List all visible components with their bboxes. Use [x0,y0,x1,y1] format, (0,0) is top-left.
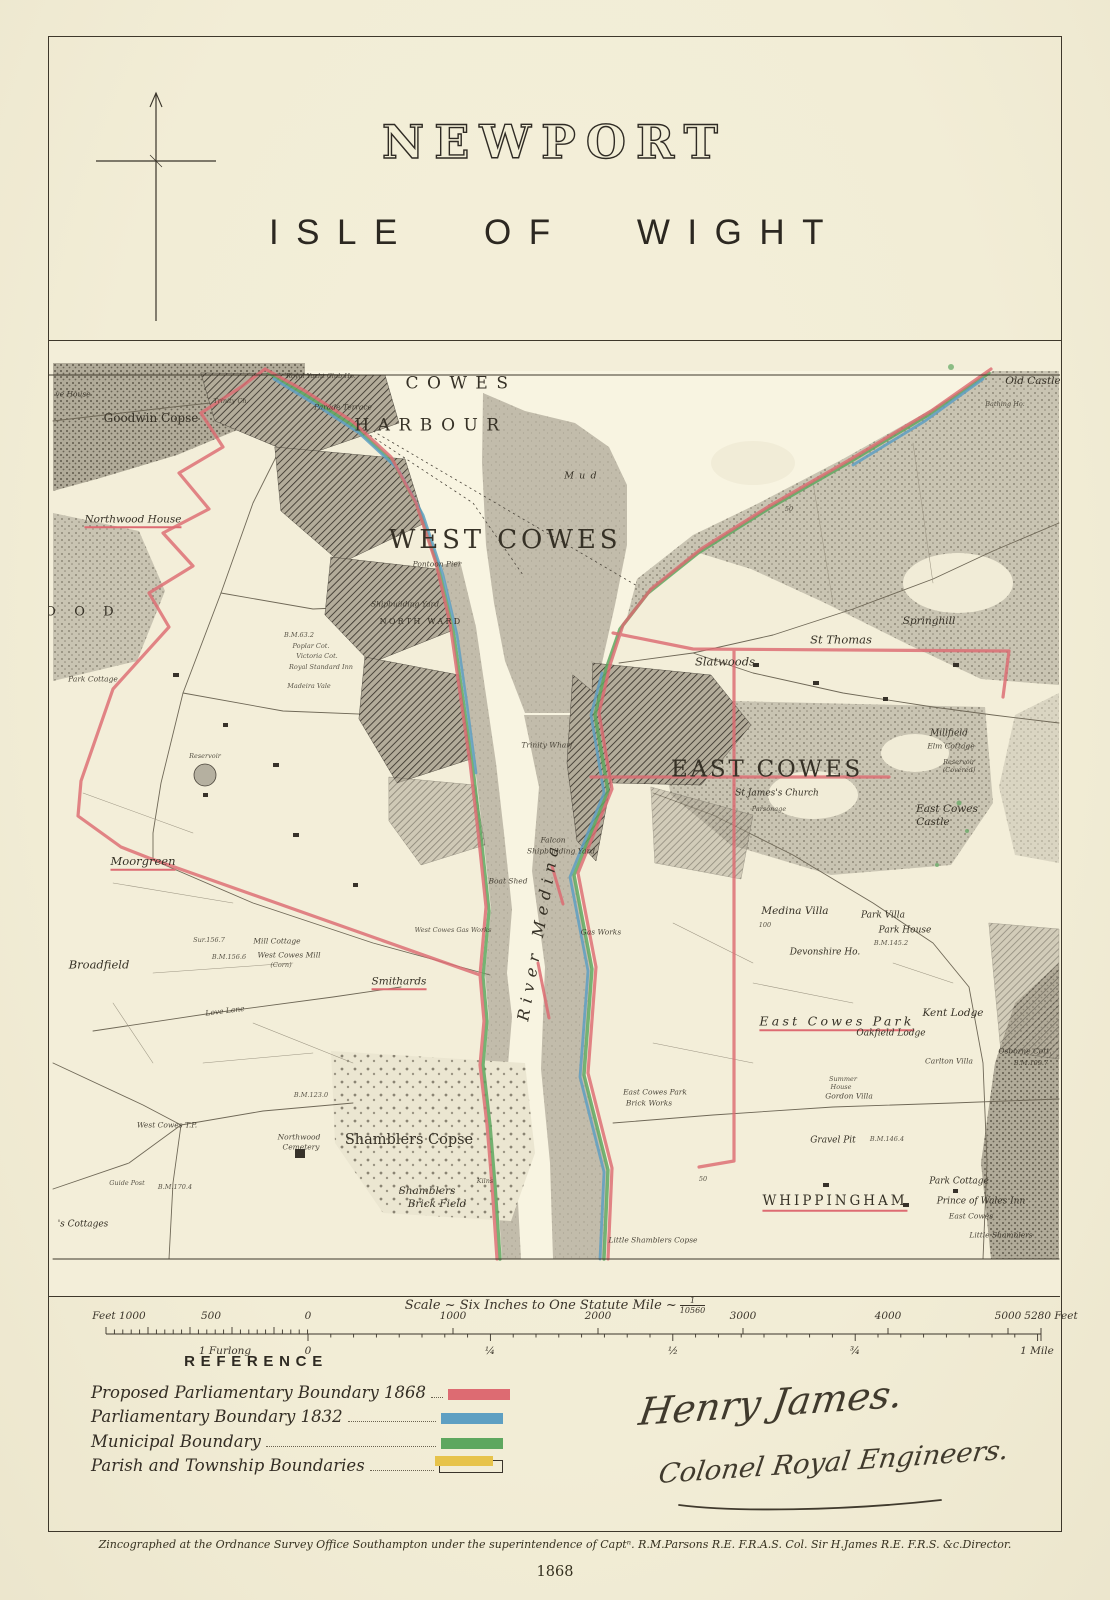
map-label: Bathing Ho. [985,401,1024,408]
map-label: B.M.63.2 [284,632,314,639]
north-compass-icon [49,37,309,337]
map-label: Falcon [540,836,565,844]
map-label: Mud [564,471,602,481]
map-label: West Cowes T.P. [137,1121,197,1129]
legend-color-fill [435,1456,493,1466]
map-label: B.M.146.4 [870,1136,904,1143]
map-label: Parade Terrace [314,403,372,411]
map-label: Medina Villa [761,906,828,917]
map-label: Old Castle [1005,376,1060,387]
legend-color-swatch [448,1389,510,1400]
map-label: Broadfield [69,959,130,971]
map-label: Little Shamblers [969,1231,1032,1239]
map-subtitle: ISLE OF WIGHT [49,213,1061,253]
map-label: St Thomas [810,634,872,646]
map-label: Park Cottage [68,675,118,683]
map-label: O O D [49,606,121,619]
map-label: Reservoir [189,753,221,760]
sheet-frame: NEWPORT ISLE OF WIGHT [48,36,1062,1532]
signature-flourish [673,1495,953,1513]
map-label: River Medina [515,840,562,1022]
map-label: B.M.156.6 [212,954,246,961]
legend-color-swatch [441,1413,503,1424]
map-label: East Cowes Park [623,1088,687,1096]
map-label: EAST COWES [671,759,863,782]
map-label: Shipbuilding Yard [527,847,595,855]
map-label: 100 [759,922,771,929]
map-label: Brick Works [626,1099,672,1107]
map-label: Love Lane [205,1005,245,1017]
map-label: B.M.123.0 [294,1092,328,1099]
map-canvas: Royal Yacht Club Ho.Parade TerraceCOWESH… [49,341,1060,1297]
reference-heading: REFERENCE [91,1353,421,1370]
map-label: Osborne Cott. [998,1047,1051,1055]
map-label: Kilns [477,1178,494,1185]
title-block: NEWPORT ISLE OF WIGHT [49,37,1061,341]
map-label: Millfield [930,730,968,739]
legend-item-label: Proposed Parliamentary Boundary 1868 [91,1383,426,1402]
legend-item: Municipal Boundary [91,1426,503,1451]
scale-fraction: 110560 [680,1297,705,1315]
map-label: COWES [406,376,517,393]
map-label: Shamblers Copse [345,1133,473,1148]
map-label: Oakfield Lodge [856,1030,925,1039]
map-label: Park Cottage [929,1178,989,1187]
map-label: East Cowes [916,804,978,815]
legend-dotted-leader [348,1421,436,1422]
map-label: Northwood [278,1133,321,1141]
map-label: NORTH WARD [380,618,463,626]
legend-color-swatch [441,1438,503,1449]
map-label: Castle [916,817,949,828]
map-label: B.M.145.2 [874,940,908,947]
map-label: Little Shamblers Copse [609,1236,698,1244]
legend-item-label: Municipal Boundary [91,1432,261,1451]
map-label: Devonshire Ho. [790,949,861,958]
map-label: Guide Post [109,1180,145,1187]
legend-dotted-leader [266,1446,436,1447]
legend-item-label: Parliamentary Boundary 1832 [91,1407,343,1426]
map-label: Northwood House [84,514,181,528]
map-label: Shamblers [399,1186,456,1197]
map-label: WEST COWES [389,527,622,553]
map-label: Mill Cottage [253,937,300,945]
map-label: Summer [829,1076,857,1083]
map-labels-layer: Royal Yacht Club Ho.Parade TerraceCOWESH… [49,341,1060,1296]
map-label: Gordon Villa [825,1092,873,1100]
map-label: Elm Cottage [927,742,974,750]
map-label: HARBOUR [354,418,507,435]
map-label: Gas Works [581,928,621,936]
map-label: Poplar Cot. [293,643,330,650]
map-label: Pontoon Pier [413,560,462,568]
map-label: Goodwin Copse [104,412,199,424]
map-label: Springhill [903,616,956,627]
map-label: Brick Field [408,1199,467,1210]
map-label: Gravel Pit [810,1137,856,1146]
map-label: (Corn) [270,962,291,969]
legend-color-swatch [439,1460,503,1473]
map-label: 50 [785,506,793,513]
map-label: Victoria Cot. [296,653,338,660]
map-label: ve House [55,390,90,398]
publication-year: 1868 [0,1564,1110,1580]
map-label: Park House [879,927,932,936]
map-label: St James's Church [735,790,819,799]
map-label: House [831,1084,852,1091]
map-label: Madeira Vale [287,683,331,690]
map-label: Trinity Wharf [521,741,572,749]
legend-item-label: Parish and Township Boundaries [91,1456,365,1475]
map-label: West Cowes Mill [257,951,320,959]
antique-map-sheet: { "title_block": { "title": "NEWPORT", "… [0,0,1110,1600]
map-label: West Cowes Gas Works [415,927,492,934]
map-label: Shipbuilding Yard [371,600,439,608]
map-label: B.M.109.7 [1014,1060,1048,1067]
map-label: B.M.170.4 [158,1184,192,1191]
map-label: East Cowes [949,1212,993,1220]
scale-statement: Scale ~ Six Inches to One Statute Mile ~… [49,1297,1061,1315]
map-label: Sur.156.7 [193,937,225,944]
signature-line2: Colonel Royal Engineers. [657,1435,1011,1490]
reference-legend: Proposed Parliamentary Boundary 1868Parl… [91,1377,503,1475]
map-label: Cemetery [282,1143,319,1151]
map-label: Parsonage [752,806,786,813]
map-label: Trinity Ch. [213,398,248,405]
map-label: Royal Yacht Club Ho. [286,373,356,380]
scale-bar [49,1323,1063,1349]
map-label: Park Villa [861,912,905,921]
imprint-line: Zincographed at the Ordnance Survey Offi… [0,1538,1110,1551]
legend-dotted-leader [370,1470,434,1471]
map-label: Kent Lodge [922,1008,983,1019]
map-label: Carlton Villa [925,1057,973,1065]
signature-line1: Henry James. [636,1372,905,1434]
map-label: 50 [699,1176,707,1183]
scale-and-legend-block: Scale ~ Six Inches to One Statute Mile ~… [49,1297,1061,1533]
legend-item: Parish and Township Boundaries [91,1451,503,1476]
map-label: (Covered) [943,767,976,774]
map-label: Boat Shed [488,877,527,885]
map-label: Slatwoods [695,656,755,668]
legend-item: Proposed Parliamentary Boundary 1868 [91,1377,503,1402]
map-label: Royal Standard Inn [289,664,353,671]
map-label: Smithards [372,976,427,990]
map-label: Prince of Wales Inn [937,1198,1026,1207]
map-label: Reservoir [943,759,975,766]
map-label: Moorgreen [111,856,176,871]
legend-dotted-leader [431,1397,443,1398]
map-title: NEWPORT [49,115,1061,169]
map-label: 's Cottages [58,1221,109,1230]
legend-item: Parliamentary Boundary 1832 [91,1402,503,1427]
map-label: WHIPPINGHAM [762,1195,907,1212]
